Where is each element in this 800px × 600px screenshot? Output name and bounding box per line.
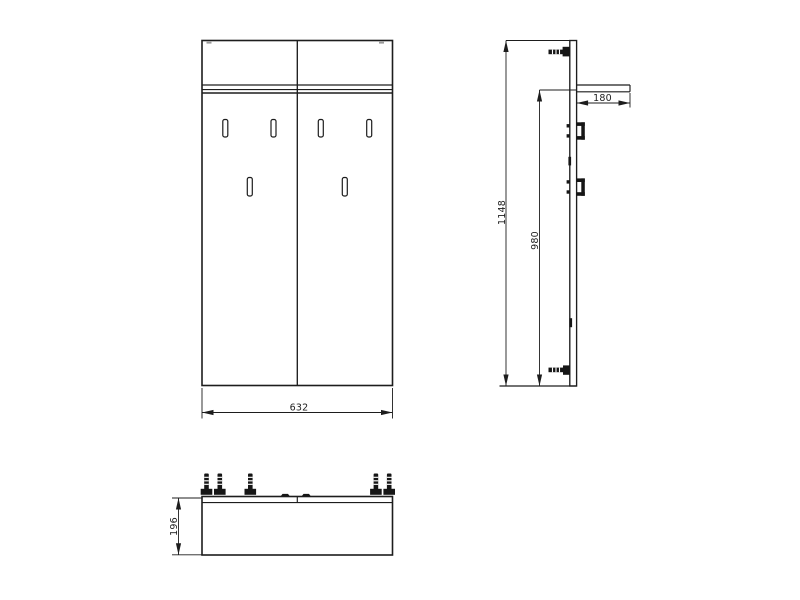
height-dimensions: 1148 980 [497, 41, 577, 387]
cam-fitting-mark [569, 318, 572, 327]
dim-label-depth: 196 [169, 517, 180, 536]
cam-fitting-mark [568, 157, 571, 166]
mounting-bolt [245, 474, 257, 495]
wall-bolt-top [549, 47, 570, 57]
mounting-bolt [214, 474, 226, 495]
mounting-bolt [370, 474, 382, 495]
mounting-bolt [201, 474, 213, 495]
hook-slot [247, 178, 252, 197]
mounting-bolt [383, 474, 395, 495]
drawing-sheet: 632 [0, 0, 800, 600]
hook-slot [367, 120, 372, 138]
side-view: 180 1148 980 [497, 41, 630, 387]
hook-slot [318, 120, 323, 138]
cabinet-outline [202, 497, 393, 556]
front-view: 632 [202, 41, 393, 419]
hook-slot [223, 120, 228, 138]
hook-slot [271, 120, 276, 138]
dowel-bump [281, 494, 291, 497]
mounting-bolts [201, 474, 395, 495]
technical-drawing: 632 [0, 0, 800, 600]
depth-dimension: 196 [169, 498, 202, 555]
dim-label-shelf-depth: 180 [593, 93, 612, 104]
front-width-dimension: 632 [202, 388, 393, 419]
wall-bolt-bottom [549, 365, 570, 374]
fixing-mark [207, 42, 212, 44]
hook-slot [342, 178, 347, 197]
shelf-depth-dimension: 180 [577, 93, 630, 108]
dowel-bump [302, 494, 312, 497]
side-panel-outline [570, 41, 577, 387]
dim-label-total-height: 1148 [497, 200, 508, 225]
top-view: 196 [169, 474, 395, 556]
dim-label-front-width: 632 [290, 403, 309, 414]
fixing-mark [379, 42, 384, 44]
dim-label-inner-height: 980 [530, 231, 541, 250]
shelf-profile [577, 85, 630, 92]
